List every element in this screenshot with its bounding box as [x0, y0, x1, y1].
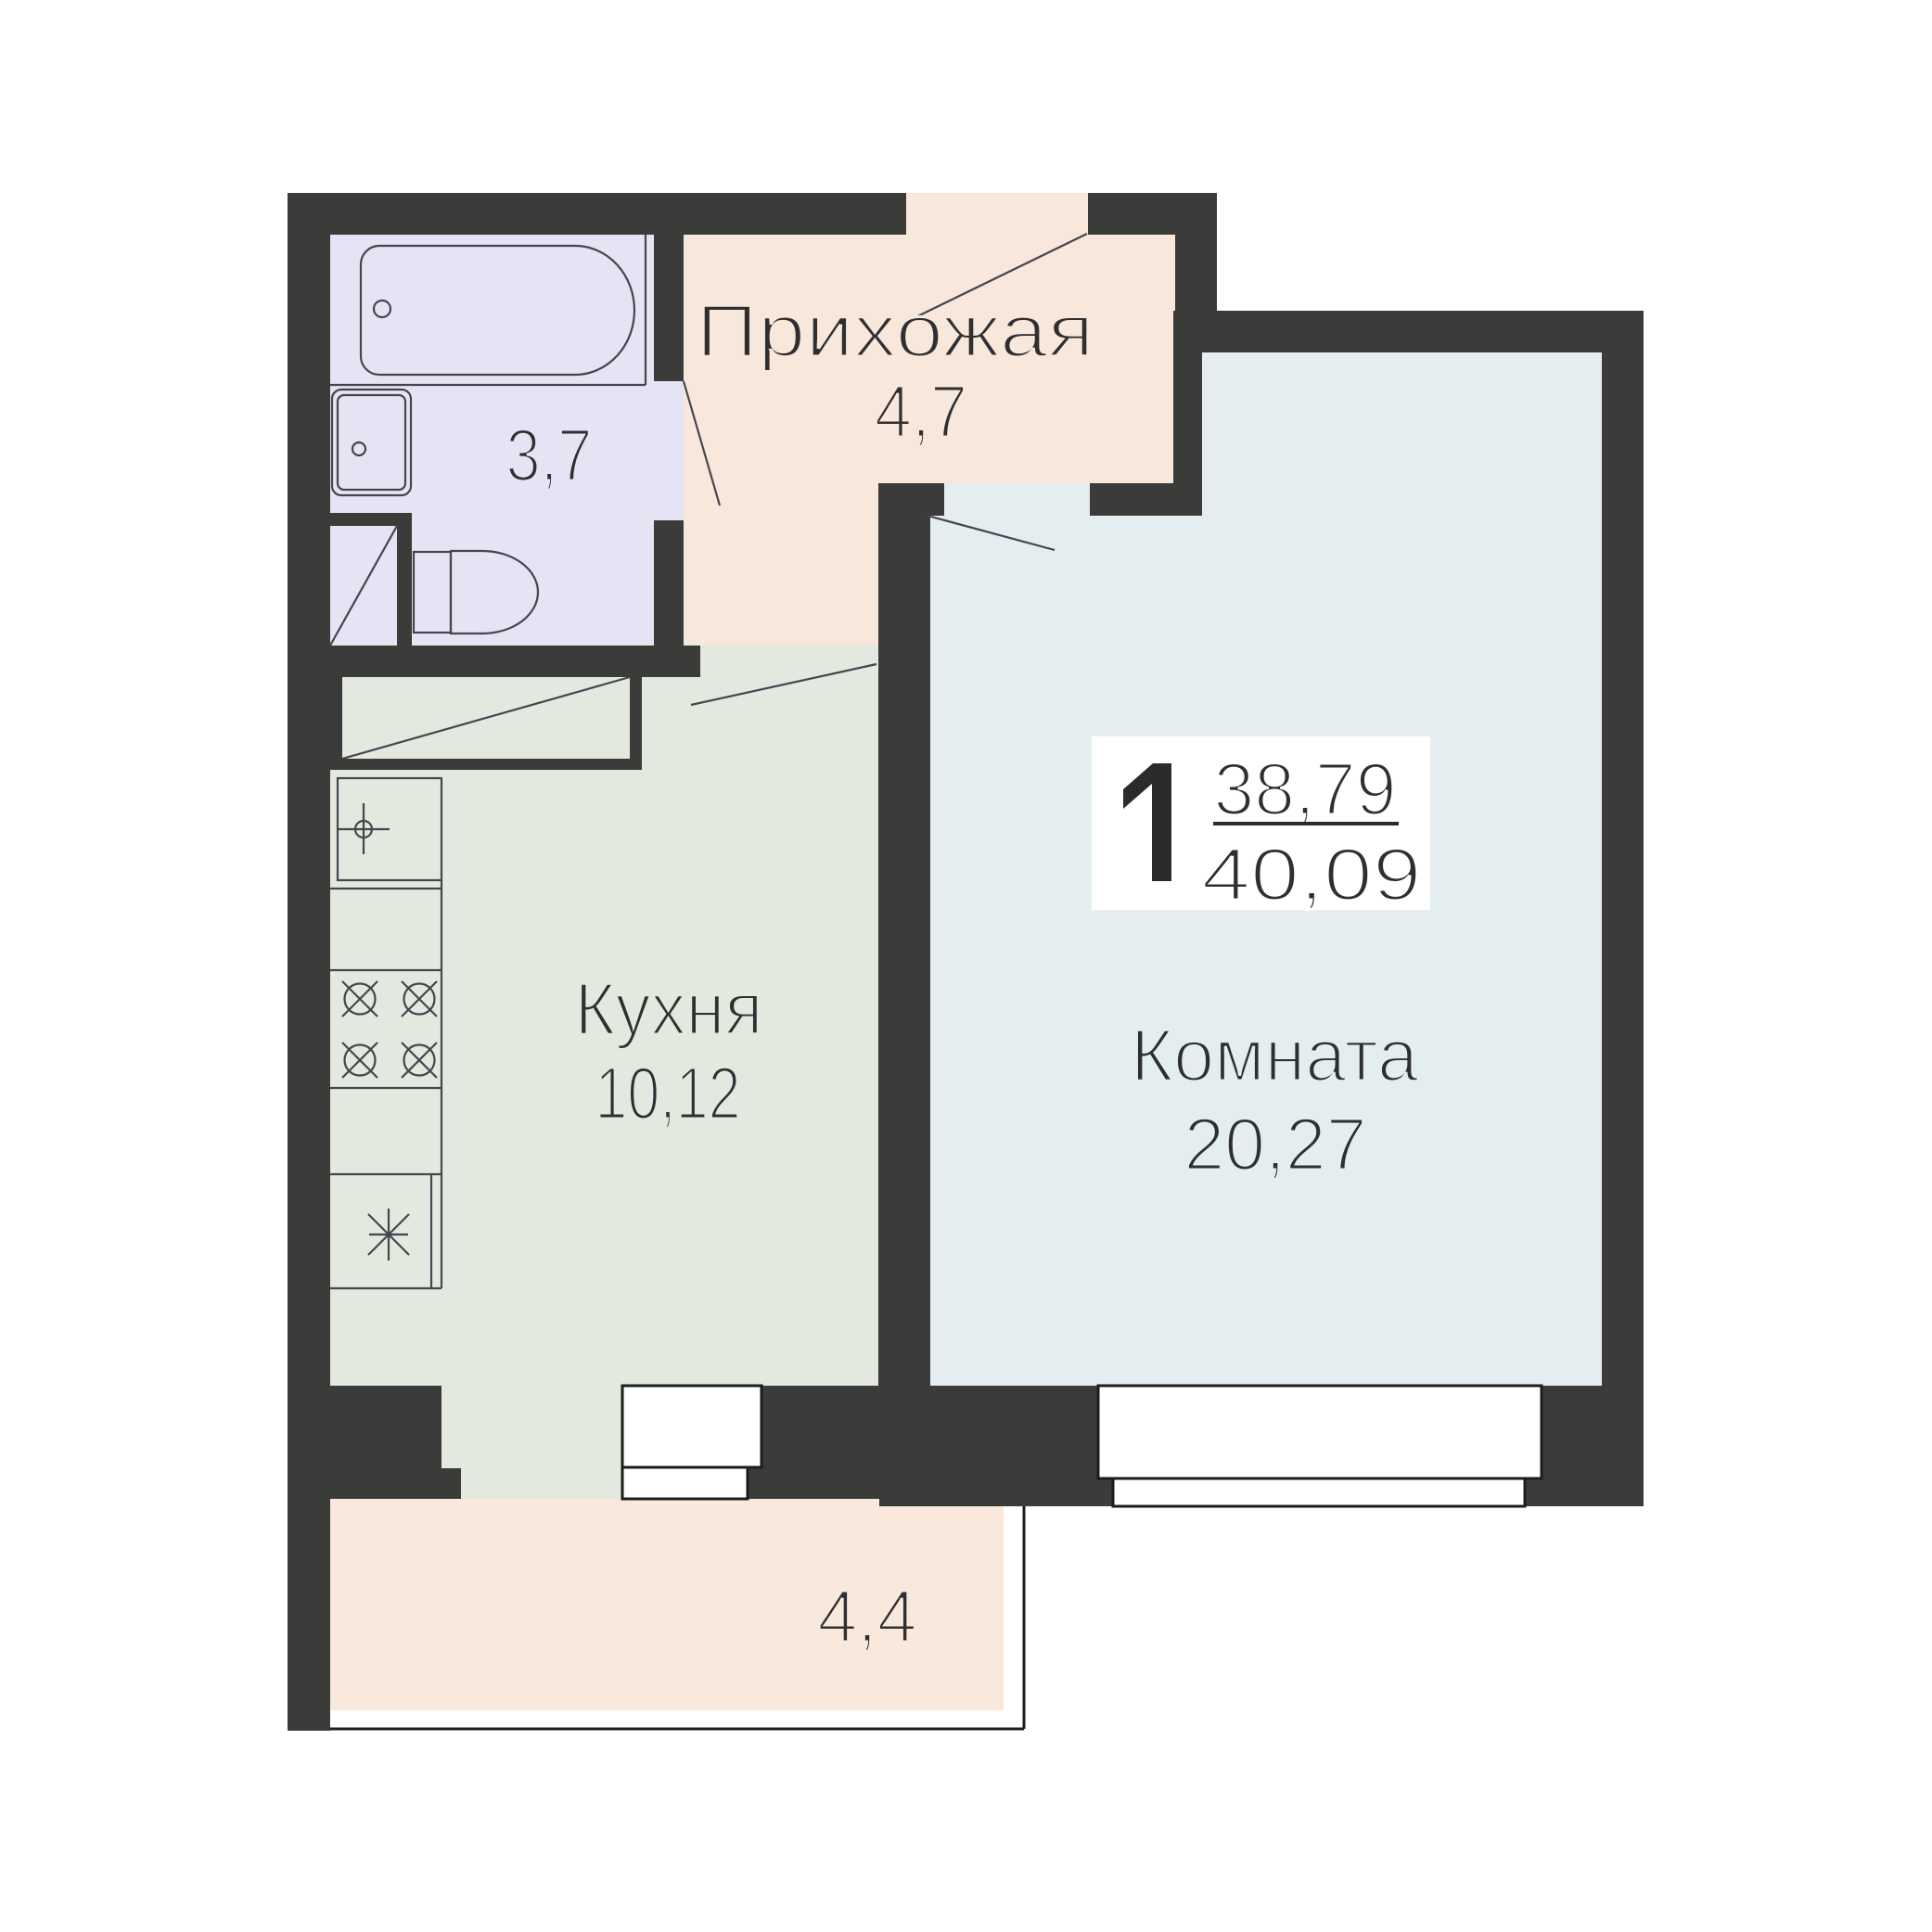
svg-text:Комната: Комната	[1131, 1014, 1418, 1096]
svg-text:38,79: 38,79	[1214, 748, 1397, 830]
svg-text:40,09: 40,09	[1202, 833, 1422, 915]
svg-text:Прихожая: Прихожая	[697, 289, 1094, 372]
svg-text:20,27: 20,27	[1184, 1103, 1367, 1185]
svg-text:10,12: 10,12	[595, 1052, 741, 1134]
svg-text:4,7: 4,7	[875, 370, 967, 453]
svg-text:3,7: 3,7	[506, 414, 593, 496]
svg-text:Кухня: Кухня	[575, 967, 763, 1050]
svg-text:4,4: 4,4	[818, 1575, 917, 1657]
